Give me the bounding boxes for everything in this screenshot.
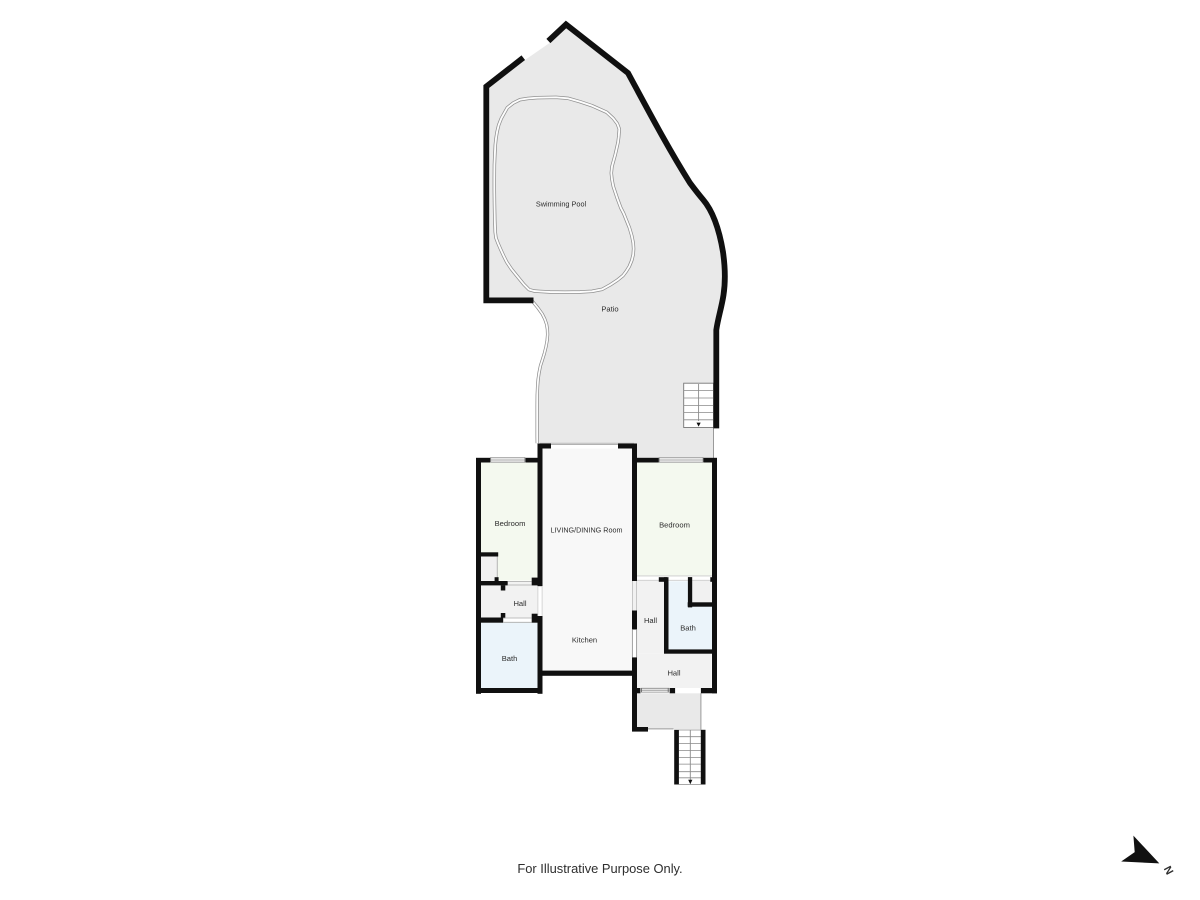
svg-text:Bath: Bath xyxy=(502,654,518,663)
svg-text:LIVING/DINING Room: LIVING/DINING Room xyxy=(551,526,623,535)
svg-text:Patio: Patio xyxy=(601,305,618,314)
svg-text:Swimming Pool: Swimming Pool xyxy=(536,199,587,208)
svg-text:Bedroom: Bedroom xyxy=(495,519,526,528)
svg-text:Bath: Bath xyxy=(680,624,696,633)
svg-text:Bedroom: Bedroom xyxy=(659,521,690,530)
svg-text:For Illustrative Purpose Only.: For Illustrative Purpose Only. xyxy=(517,861,682,876)
svg-text:Kitchen: Kitchen xyxy=(572,636,597,645)
svg-text:Hall: Hall xyxy=(644,616,657,625)
svg-text:Hall: Hall xyxy=(513,599,526,608)
svg-text:Hall: Hall xyxy=(667,669,680,678)
svg-text:N: N xyxy=(1161,864,1175,877)
